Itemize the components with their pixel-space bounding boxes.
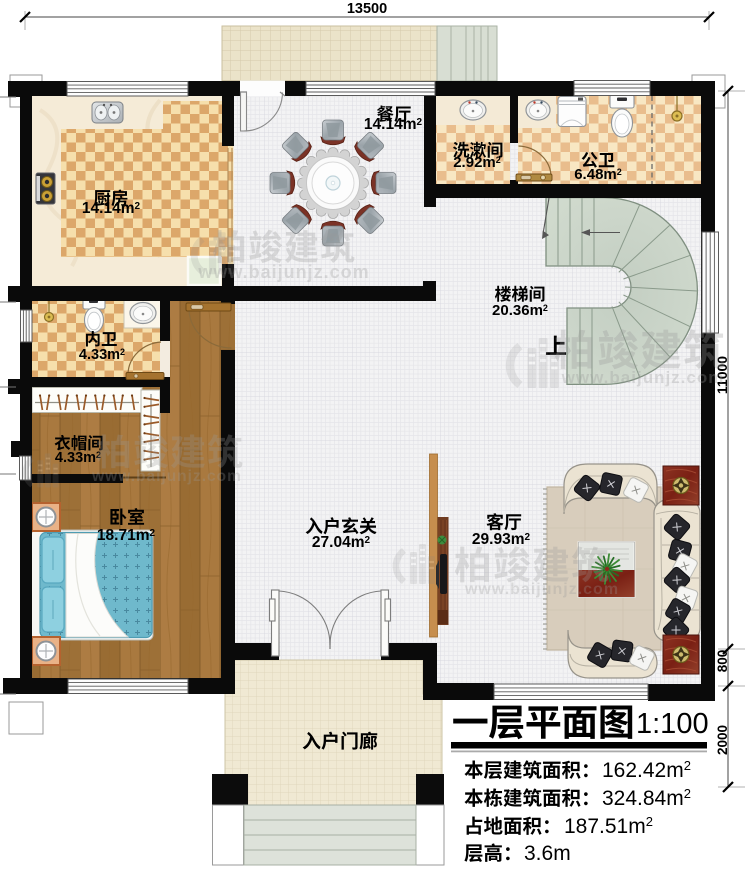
svg-text:www.baijunjz.com: www.baijunjz.com <box>464 581 619 598</box>
svg-text:4.33m2: 4.33m2 <box>55 450 101 466</box>
svg-text:324.84m2: 324.84m2 <box>602 786 691 810</box>
svg-text:1:100: 1:100 <box>636 708 709 740</box>
svg-text:800: 800 <box>715 650 730 673</box>
svg-text:www.baijunjz.com: www.baijunjz.com <box>91 468 242 485</box>
svg-text:13500: 13500 <box>347 1 387 17</box>
svg-text:162.42m2: 162.42m2 <box>602 758 691 782</box>
svg-text:20.36m2: 20.36m2 <box>492 302 548 319</box>
svg-text:2.92m2: 2.92m2 <box>453 154 501 171</box>
svg-text:www.baijunjz.com: www.baijunjz.com <box>561 368 725 387</box>
svg-text:27.04m2: 27.04m2 <box>312 534 371 551</box>
svg-text:2000: 2000 <box>715 725 730 755</box>
svg-text:4.33m2: 4.33m2 <box>79 347 125 363</box>
svg-text:18.71m2: 18.71m2 <box>97 527 156 544</box>
svg-text:6.48m2: 6.48m2 <box>574 166 622 183</box>
svg-text:29.93m2: 29.93m2 <box>472 531 531 548</box>
svg-text:187.51m2: 187.51m2 <box>564 814 653 838</box>
svg-text:3.6m: 3.6m <box>524 842 571 865</box>
svg-text:14.14m2: 14.14m2 <box>82 200 141 217</box>
svg-text:www.baijunjz.com: www.baijunjz.com <box>197 262 369 282</box>
svg-text:14.14m2: 14.14m2 <box>364 116 423 133</box>
